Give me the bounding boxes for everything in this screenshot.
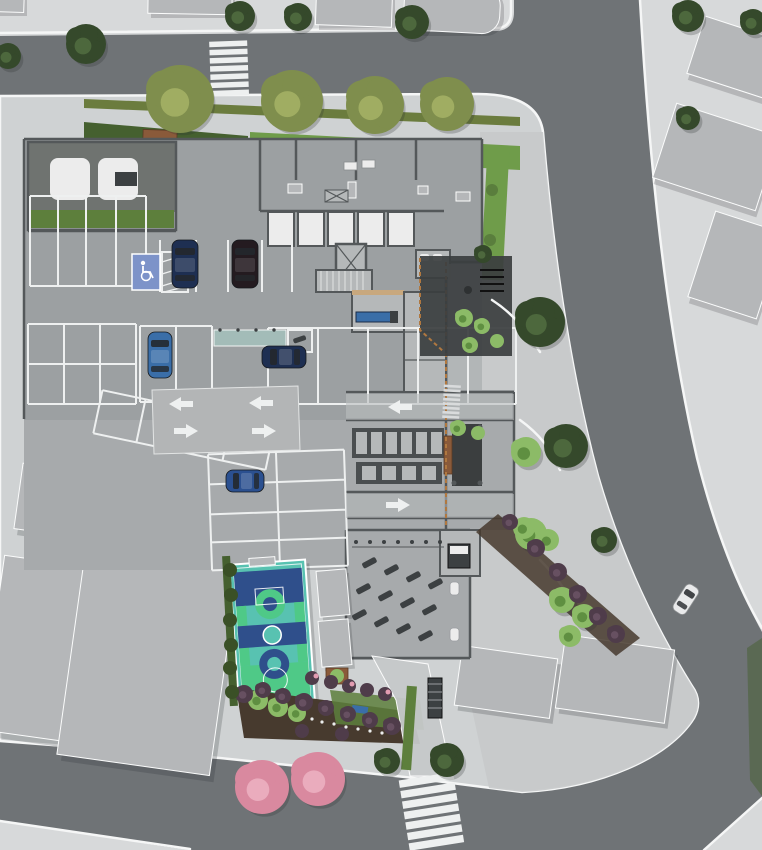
furniture bbox=[348, 182, 356, 198]
site-plan-render bbox=[0, 0, 762, 850]
room bbox=[298, 212, 324, 246]
neighbor-building-slab bbox=[315, 0, 392, 27]
car-blue-garage-vertical bbox=[148, 332, 172, 378]
court-bench bbox=[249, 557, 275, 567]
tree-blob bbox=[223, 661, 237, 675]
tree-palm bbox=[490, 334, 504, 348]
room bbox=[268, 212, 294, 246]
room bbox=[388, 212, 414, 246]
tree-white bbox=[368, 729, 371, 732]
tree-shrub bbox=[324, 675, 338, 689]
tree-white bbox=[332, 722, 335, 725]
manhole bbox=[464, 286, 472, 294]
center-circle bbox=[263, 625, 282, 644]
furniture bbox=[456, 192, 470, 201]
toilet bbox=[450, 628, 459, 641]
corridor bbox=[346, 394, 514, 420]
tree-blob bbox=[224, 638, 238, 652]
room-grass bbox=[30, 210, 174, 228]
roof-vent bbox=[344, 162, 357, 170]
unit-rooms bbox=[268, 212, 414, 246]
car-blue-lower-parking bbox=[226, 470, 264, 492]
room bbox=[358, 212, 384, 246]
wood-counter-edge bbox=[352, 290, 404, 295]
tree-shrub bbox=[549, 563, 567, 581]
tree-shrub bbox=[295, 724, 309, 738]
table bbox=[50, 158, 90, 200]
tree-palm bbox=[450, 420, 466, 436]
tree-palm bbox=[455, 309, 473, 327]
neighbor-building-slab bbox=[0, 0, 24, 13]
room bbox=[328, 212, 354, 246]
utility-box bbox=[115, 172, 137, 186]
tree-shrub bbox=[360, 683, 374, 697]
furniture bbox=[288, 184, 302, 193]
car-navy-garage-vertical bbox=[172, 240, 198, 288]
tree-shrub bbox=[255, 682, 271, 698]
tree-shrub bbox=[340, 706, 356, 722]
tree-white bbox=[320, 720, 323, 723]
neighbor-building-slab bbox=[148, 0, 232, 15]
roof-vent bbox=[362, 160, 375, 168]
tree-blob bbox=[224, 588, 238, 602]
wheelchair-icon bbox=[141, 261, 145, 265]
car-navy-garage-horizontal bbox=[262, 346, 306, 368]
tree-blob bbox=[225, 685, 239, 699]
tree-shrub bbox=[589, 607, 607, 625]
pergola-panels bbox=[316, 569, 355, 684]
toilet bbox=[450, 582, 459, 595]
tree-shrub bbox=[527, 539, 545, 557]
accessible-parking-spot bbox=[132, 254, 160, 290]
furniture bbox=[418, 186, 428, 194]
tree-shrub bbox=[569, 585, 587, 603]
tree-palm bbox=[559, 625, 581, 647]
tree-dark bbox=[474, 245, 492, 263]
tree-pinkdot bbox=[314, 674, 319, 679]
tree-shrub bbox=[275, 688, 291, 704]
tree-white bbox=[344, 725, 347, 728]
tree-pinkdot bbox=[350, 682, 355, 687]
site-plan-canvas bbox=[0, 0, 762, 850]
tree-shrub bbox=[295, 693, 313, 711]
tree-palm bbox=[462, 337, 478, 353]
tree-pinkdot bbox=[386, 690, 391, 695]
corridor bbox=[346, 494, 514, 518]
tree-white bbox=[310, 717, 313, 720]
tree-shrub bbox=[607, 625, 625, 643]
tree-palm bbox=[474, 318, 490, 334]
car-black-garage-vertical bbox=[232, 240, 258, 288]
glass-canopy bbox=[214, 330, 286, 346]
tree-shrub bbox=[362, 712, 378, 728]
tree-blob bbox=[223, 613, 237, 627]
tree-palm bbox=[471, 426, 485, 440]
trellis bbox=[428, 678, 442, 718]
garage-ramp bbox=[152, 386, 300, 454]
tree-shrub bbox=[383, 717, 401, 735]
trash-room bbox=[440, 530, 480, 576]
tree-shrub bbox=[335, 727, 349, 741]
tree-shrub bbox=[378, 687, 392, 701]
tree-white bbox=[380, 731, 383, 734]
tree-blob bbox=[223, 563, 237, 577]
tree-shrub bbox=[502, 514, 518, 530]
tree-white bbox=[356, 727, 359, 730]
counter-end bbox=[390, 311, 398, 323]
tree-shrub bbox=[318, 700, 334, 716]
storage-lockers bbox=[352, 428, 444, 484]
northwest-room bbox=[28, 142, 176, 230]
tree-shrub bbox=[342, 679, 356, 693]
